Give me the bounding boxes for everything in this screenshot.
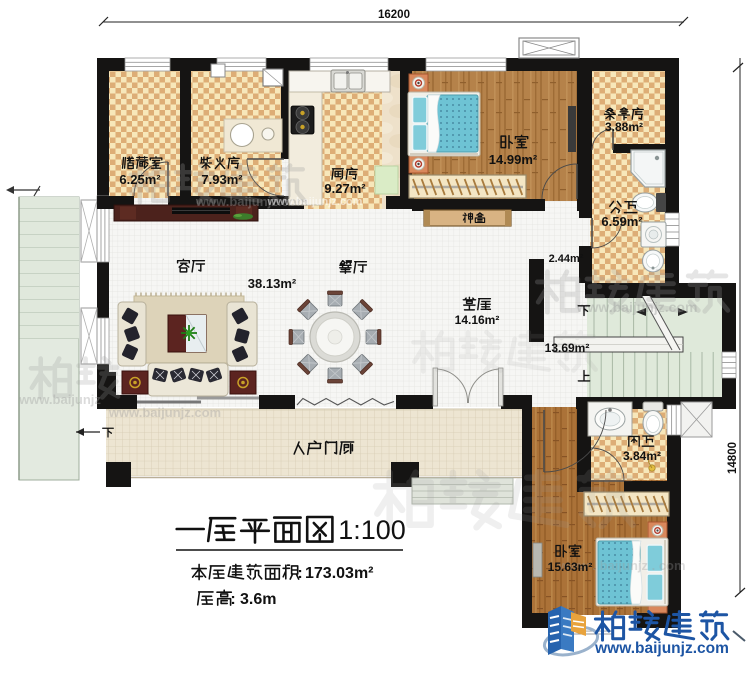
svg-text:14800: 14800: [727, 442, 739, 474]
svg-text:16200: 16200: [378, 9, 410, 21]
svg-text:3.84m²: 3.84m²: [623, 449, 661, 463]
svg-text:15.63m²: 15.63m²: [548, 560, 593, 574]
svg-text:www.baijunjz.com: www.baijunjz.com: [576, 299, 698, 315]
svg-text:2.44m²: 2.44m²: [549, 253, 584, 265]
svg-text:3.6m: 3.6m: [240, 591, 276, 608]
svg-text:7.93m²: 7.93m²: [201, 172, 243, 187]
svg-text:173.03m²: 173.03m²: [305, 565, 374, 582]
svg-text:6.59m²: 6.59m²: [601, 214, 643, 229]
svg-text:3.88m²: 3.88m²: [605, 120, 643, 134]
svg-text:14.16m²: 14.16m²: [455, 313, 500, 327]
svg-text:www.baijunjz.com: www.baijunjz.com: [267, 196, 363, 208]
svg-text:13.69m²: 13.69m²: [545, 341, 590, 355]
svg-text:1:100: 1:100: [338, 515, 406, 545]
svg-text:9.27m²: 9.27m²: [324, 181, 366, 196]
svg-text:www.baijunjz: www.baijunjz: [18, 392, 101, 407]
svg-text:38.13m²: 38.13m²: [248, 276, 297, 291]
svg-text:www.baijunjz.com: www.baijunjz.com: [594, 640, 729, 657]
svg-text::: :: [230, 591, 235, 608]
svg-text:14.99m²: 14.99m²: [489, 152, 538, 167]
svg-text:www.baijunjz.com: www.baijunjz.com: [108, 405, 221, 420]
svg-text::: :: [297, 565, 302, 582]
svg-text:6.25m²: 6.25m²: [119, 172, 161, 187]
